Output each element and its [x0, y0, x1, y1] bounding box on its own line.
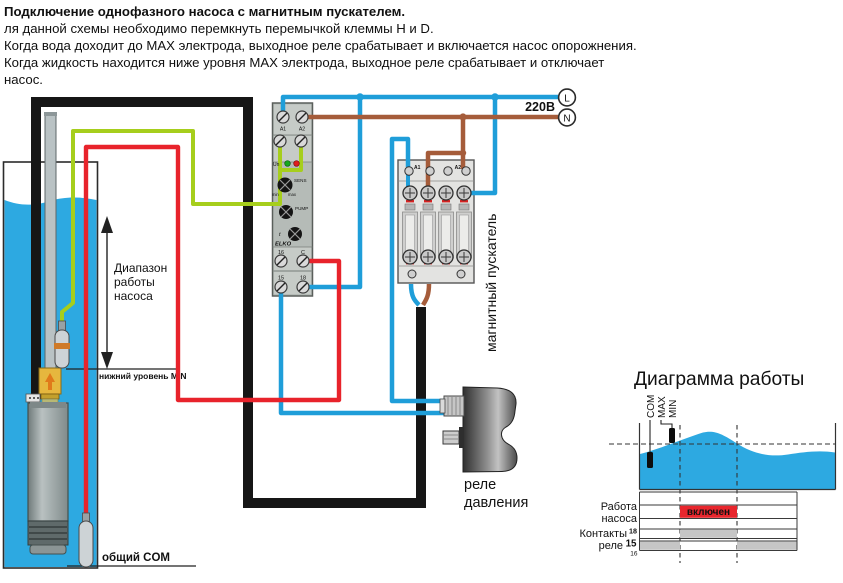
screw-terminal: [457, 270, 465, 278]
pump-row-label-1: Работа: [601, 501, 638, 513]
pump-mode-label: PUMP: [295, 206, 308, 211]
junction-dot-blue: [356, 93, 364, 101]
range-arrow-up: [101, 216, 113, 233]
screw-terminal: [408, 270, 416, 278]
pressure-switch-body: [463, 387, 517, 472]
contact-15-number: 15: [626, 539, 637, 550]
screw-terminal: [405, 167, 413, 175]
contacts-row-label-1: Контакты: [579, 528, 627, 540]
clamp-tab: [459, 204, 469, 210]
pump-row-label-2: насоса: [601, 513, 637, 525]
maxmin-electrode-tip: [669, 428, 675, 443]
contactor-a2-label: A2: [455, 165, 462, 171]
screw-terminal: [462, 167, 470, 175]
side-bolt: [443, 431, 459, 444]
contacts-row-label-2: реле: [599, 540, 623, 552]
range-arrow-down: [101, 352, 113, 369]
submersible-pump-body: [28, 403, 68, 521]
gland-dot: [37, 397, 39, 399]
relay-a2-label: A2: [299, 127, 305, 133]
contactor-label: магнитный пускатель: [483, 214, 499, 352]
cable-fitting: [444, 396, 464, 416]
screw-terminal: [426, 167, 434, 175]
schematic-svg: Диапазон работы насоса нижний уровень MI…: [0, 0, 843, 583]
relay-a1-label: A1: [280, 127, 286, 133]
pressure-switch: реле давления: [440, 387, 528, 511]
screw-terminal: [444, 167, 452, 175]
clamp-tab: [441, 204, 451, 210]
sens-max-label: max: [288, 192, 297, 197]
min-electrode-band: [54, 343, 70, 349]
wire-brown-pigtail: [423, 284, 429, 305]
red-led: [294, 161, 300, 167]
wire-blue-pigtail: [411, 284, 419, 305]
electrode-min-label: MIN: [668, 400, 679, 418]
fitting-collar: [440, 399, 445, 413]
pump-top-cap: [30, 402, 66, 408]
voltage-label: 220В: [525, 100, 555, 114]
contact-15-bar-left: [640, 542, 680, 550]
com-electrode-tip: [647, 452, 653, 468]
gland-dot: [29, 397, 31, 399]
contact-15-bar-right: [737, 542, 797, 550]
pressure-switch-label-2: давления: [464, 495, 528, 511]
electrode-com-label: COM: [646, 395, 657, 418]
contact-16-number: 16: [630, 551, 638, 558]
bolt-washer: [459, 427, 464, 448]
riser-pipe: [45, 114, 56, 370]
contact-18-number: 18: [629, 527, 637, 536]
pole-slot-inner: [442, 215, 451, 255]
wire-blue-line-l: [283, 97, 558, 116]
riser-pipe-cap: [44, 112, 57, 116]
relay-16-label: 16: [278, 250, 284, 256]
contact-18-bar: [680, 530, 737, 538]
pump-bottom-cap: [30, 545, 66, 554]
pole-slot-inner: [424, 215, 433, 255]
power-supply: 220В L N: [525, 89, 575, 126]
junction-dot-brown: [460, 150, 466, 156]
pole-slot-inner: [460, 215, 469, 255]
range-label-3: насоса: [114, 289, 153, 303]
relay-un-label: Un: [273, 162, 280, 168]
sens-label: SENS: [294, 178, 307, 183]
com-electrode: [79, 521, 93, 567]
range-label-2: работы: [114, 275, 155, 289]
pole-slot-inner: [406, 215, 415, 255]
valve-coupling: [41, 394, 59, 399]
relay-15-label: 15: [278, 276, 284, 282]
maxmin-electrode-bracket: [661, 420, 672, 429]
green-led: [285, 161, 291, 167]
wire-junctions: [356, 93, 499, 156]
min-level-label: нижний уровень MIN: [99, 371, 186, 381]
relay-c-label: C: [301, 250, 305, 256]
com-label: общий COM: [102, 552, 170, 564]
relay-18-label: 18: [300, 276, 306, 282]
relay-brand: ELKO: [275, 242, 292, 248]
neutral-terminal-label: N: [563, 114, 570, 125]
line-terminal-label: L: [564, 94, 570, 105]
range-label-1: Диапазон: [114, 261, 167, 275]
contactor-a1-label: A1: [414, 165, 421, 171]
clamp-tab: [405, 204, 415, 210]
sens-min-label: min: [272, 192, 279, 197]
pressure-switch-label-1: реле: [464, 477, 496, 493]
wire-blue-relay18: [306, 97, 360, 287]
work-diagram: Диаграмма работы COM MAX MIN: [579, 369, 835, 563]
clamp-tab: [423, 204, 433, 210]
check-valve-arrow-stem: [48, 382, 52, 390]
work-diagram-title: Диаграмма работы: [634, 369, 804, 390]
pump-on-badge-label: включен: [687, 507, 730, 518]
gland-dot: [33, 397, 35, 399]
wiring-diagram-page: Подключение однофазного насоса с магнитн…: [0, 0, 843, 583]
junction-dot-blue: [491, 93, 499, 101]
junction-dot-brown: [459, 113, 466, 120]
electrode-max-label: MAX: [657, 396, 668, 418]
